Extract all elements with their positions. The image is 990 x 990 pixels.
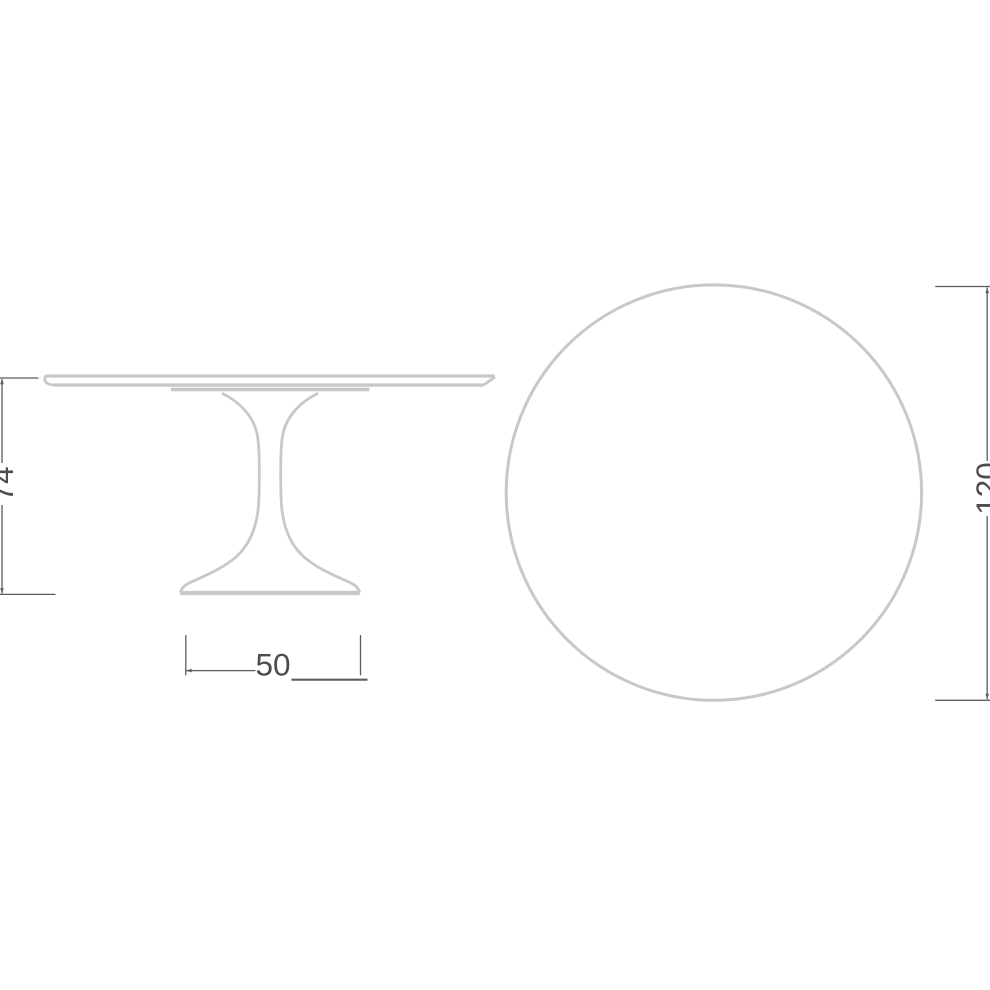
svg-text:74: 74 [0,466,20,501]
svg-text:120: 120 [969,462,990,515]
svg-text:50: 50 [255,647,290,683]
